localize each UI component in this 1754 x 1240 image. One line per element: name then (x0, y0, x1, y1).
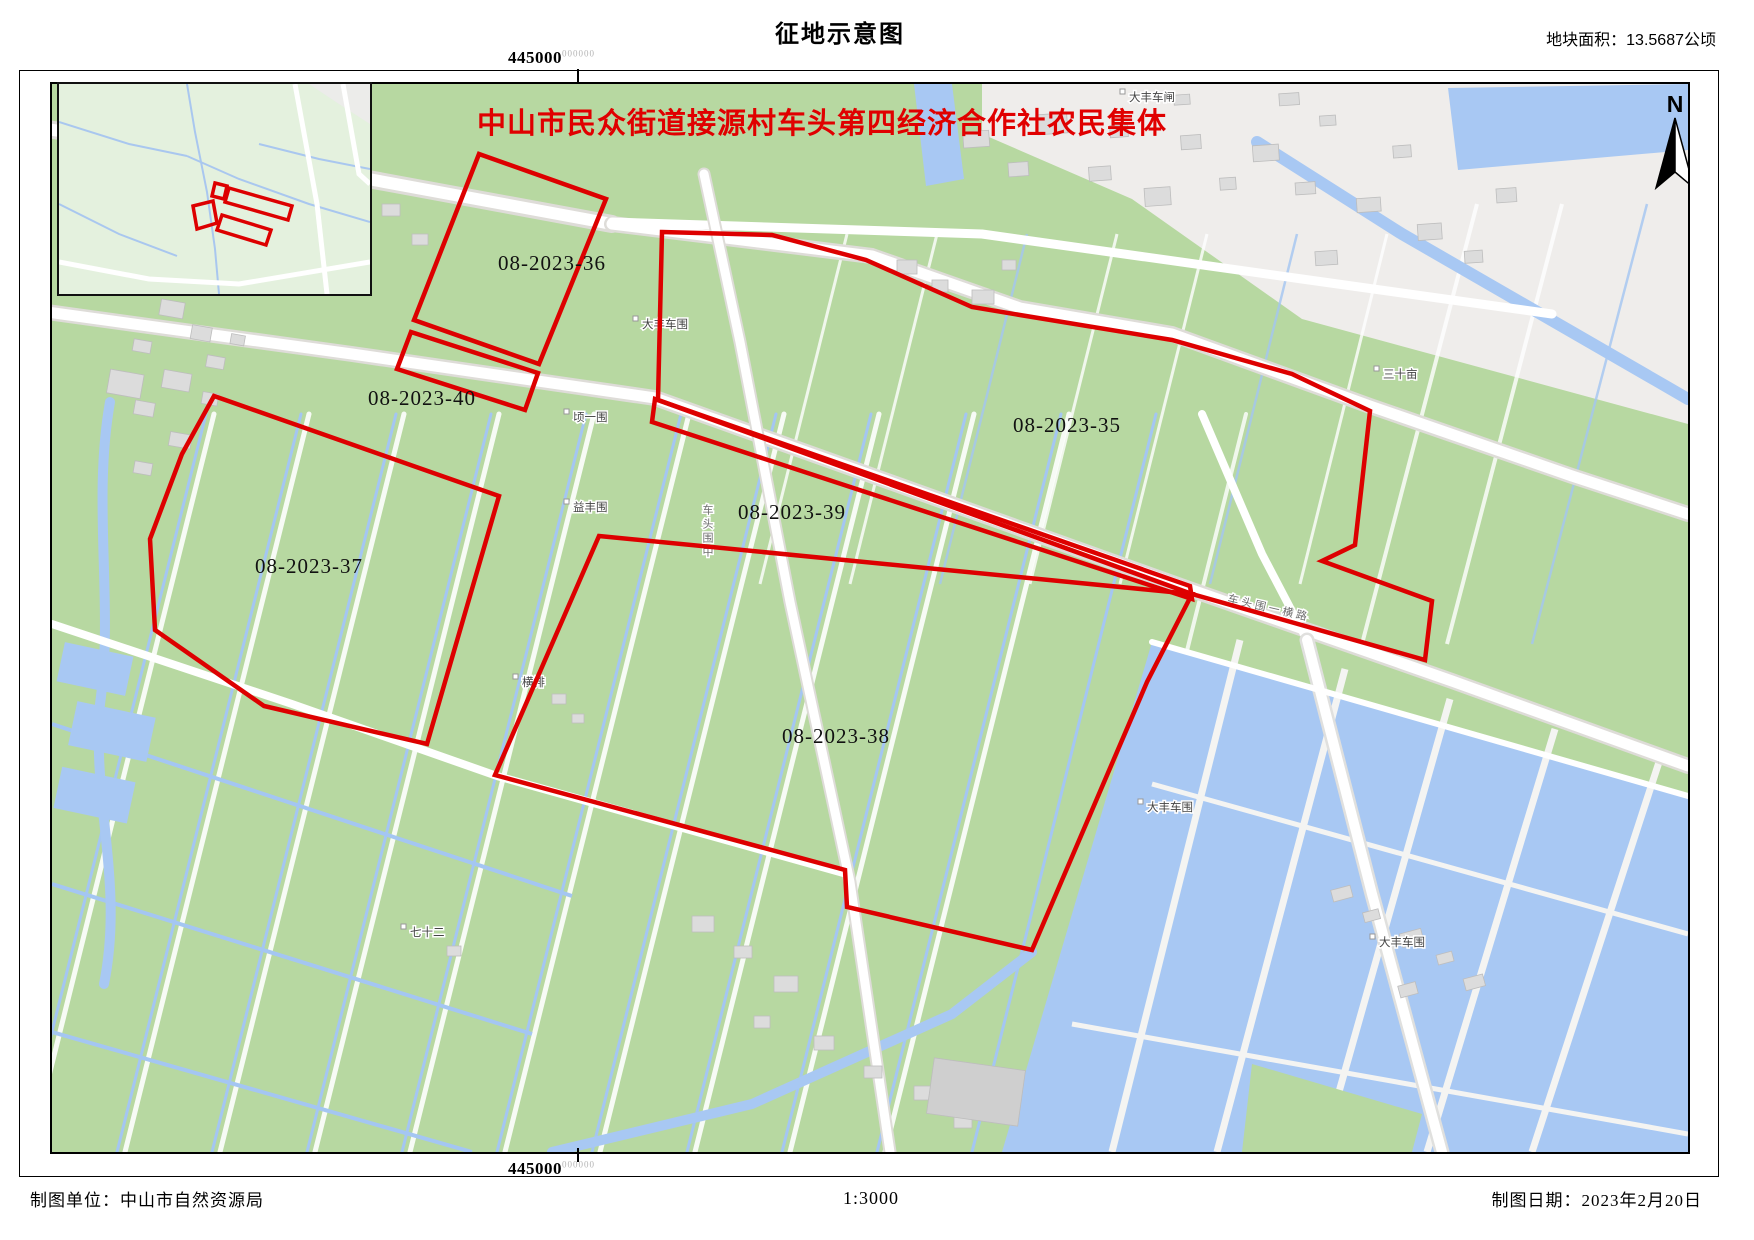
plot-area-label: 地块面积：13.5687公顷 (1546, 26, 1716, 50)
coordinate-superscript: 000000 (562, 48, 595, 58)
coordinate-label-bottom: 445000000000 (508, 1159, 595, 1179)
parcel-label-08-2023-36: 08-2023-36 (498, 251, 606, 275)
road-label-vertical: 车头围中 (701, 503, 714, 560)
coordinate-main: 445000 (508, 1159, 562, 1178)
coordinate-label-top: 445000000000 (508, 48, 595, 68)
place-label: 大丰车围 (1379, 935, 1425, 949)
parcel-label-08-2023-40: 08-2023-40 (368, 386, 476, 410)
map-scale-label: 1:3000 (843, 1188, 899, 1209)
map-sheet: 征地示意图 地块面积：13.5687公顷 445000000000 (0, 0, 1754, 1240)
page-title: 征地示意图 (775, 14, 905, 49)
place-label: 大丰车围 (1147, 800, 1193, 814)
coordinate-main: 445000 (508, 48, 562, 67)
parcel-label-08-2023-35: 08-2023-35 (1013, 413, 1121, 437)
place-label: 三十亩 (1383, 367, 1418, 381)
parcel-label-08-2023-38: 08-2023-38 (782, 724, 890, 748)
parcel-label-08-2023-37: 08-2023-37 (255, 554, 363, 578)
coordinate-tick-bottom (577, 1148, 579, 1162)
collective-name-title: 中山市民众街道接源村车头第四经济合作社农民集体 (477, 100, 1167, 142)
parcel-label-08-2023-39: 08-2023-39 (738, 500, 846, 524)
inset-overview-map (57, 82, 372, 296)
place-label: 顷一围 (573, 411, 608, 424)
map-date-label: 制图日期：2023年2月20日 (1492, 1186, 1703, 1211)
place-label: 大丰车围 (642, 317, 688, 331)
north-label: N (1667, 91, 1684, 117)
inset-svg (59, 84, 370, 294)
place-label: 七十二 (410, 925, 445, 939)
map-producer-label: 制图单位：中山市自然资源局 (30, 1186, 264, 1211)
place-label: 益丰围 (573, 500, 608, 514)
